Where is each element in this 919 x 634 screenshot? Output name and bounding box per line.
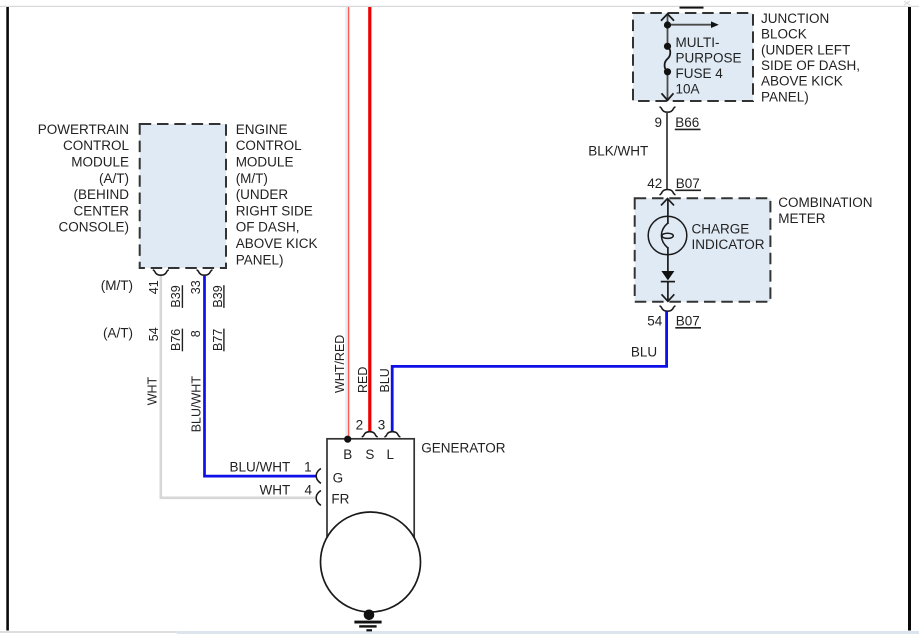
svg-text:SIDE OF DASH,: SIDE OF DASH,	[761, 58, 860, 73]
svg-text:2: 2	[356, 418, 364, 433]
svg-text:BLU/WHT: BLU/WHT	[230, 460, 291, 475]
svg-text:WHT: WHT	[145, 376, 159, 405]
svg-text:G: G	[333, 470, 344, 485]
svg-text:ABOVE KICK: ABOVE KICK	[761, 74, 843, 89]
svg-text:BLU/WHT: BLU/WHT	[189, 376, 203, 433]
svg-text:ABOVE KICK: ABOVE KICK	[236, 236, 318, 251]
svg-text:54: 54	[147, 327, 161, 341]
svg-text:CHARGE: CHARGE	[692, 221, 750, 236]
svg-text:CENTER: CENTER	[73, 203, 129, 218]
svg-text:RIGHT SIDE: RIGHT SIDE	[236, 203, 313, 218]
svg-text:3: 3	[378, 418, 386, 433]
svg-text:1: 1	[304, 460, 312, 475]
svg-text:WHT: WHT	[260, 482, 291, 497]
svg-text:METER: METER	[778, 211, 826, 226]
svg-text:CONTROL: CONTROL	[236, 138, 302, 153]
svg-text:BLK/WHT: BLK/WHT	[588, 144, 648, 159]
svg-text:S: S	[365, 447, 374, 462]
svg-text:9: 9	[654, 115, 662, 130]
svg-text:MODULE: MODULE	[71, 155, 129, 170]
svg-text:8: 8	[189, 330, 203, 337]
svg-text:CONSOLE): CONSOLE)	[58, 220, 129, 235]
svg-text:WHT/RED: WHT/RED	[333, 335, 347, 393]
svg-text:POWERTRAIN: POWERTRAIN	[38, 122, 129, 137]
svg-text:JUNCTION: JUNCTION	[761, 11, 829, 26]
svg-text:B66: B66	[675, 115, 699, 130]
svg-text:INDICATOR: INDICATOR	[692, 237, 765, 252]
svg-text:B76: B76	[169, 329, 183, 351]
svg-text:(UNDER: (UNDER	[236, 187, 289, 202]
svg-text:PANEL): PANEL)	[236, 252, 284, 267]
svg-text:BLOCK: BLOCK	[761, 27, 807, 42]
svg-text:33: 33	[189, 280, 203, 294]
svg-text:(M/T): (M/T)	[236, 171, 268, 186]
svg-text:CONTROL: CONTROL	[63, 138, 129, 153]
svg-text:B39: B39	[169, 285, 183, 307]
svg-text:GENERATOR: GENERATOR	[421, 440, 506, 455]
svg-text:RED: RED	[356, 367, 370, 393]
svg-text:ENGINE: ENGINE	[236, 122, 288, 137]
svg-text:BLU: BLU	[378, 368, 392, 392]
svg-text:PANEL): PANEL)	[761, 89, 809, 104]
svg-text:(M/T): (M/T)	[101, 278, 133, 293]
svg-text:(A/T): (A/T)	[99, 171, 129, 186]
svg-text:B: B	[343, 447, 352, 462]
svg-text:FUSE 4: FUSE 4	[676, 66, 724, 81]
svg-text:41: 41	[147, 280, 161, 294]
svg-text:42: 42	[647, 176, 662, 191]
svg-text:MULTI-: MULTI-	[676, 35, 720, 50]
svg-text:L: L	[387, 447, 395, 462]
svg-text:(UNDER LEFT: (UNDER LEFT	[761, 42, 850, 57]
svg-text:10A: 10A	[676, 82, 700, 97]
svg-text:BLU: BLU	[631, 344, 657, 359]
svg-text:B07: B07	[676, 313, 700, 328]
svg-text:PURPOSE: PURPOSE	[676, 50, 742, 65]
svg-text:FR: FR	[331, 492, 349, 507]
svg-text:MODULE: MODULE	[236, 155, 294, 170]
svg-text:B77: B77	[211, 329, 225, 351]
svg-text:B39: B39	[211, 285, 225, 307]
svg-text:(A/T): (A/T)	[103, 325, 133, 340]
svg-text:OF DASH,: OF DASH,	[236, 220, 300, 235]
svg-text:(BEHIND: (BEHIND	[73, 187, 129, 202]
svg-text:B07: B07	[676, 176, 700, 191]
svg-text:4: 4	[304, 482, 312, 497]
svg-text:54: 54	[647, 313, 663, 328]
svg-text:COMBINATION: COMBINATION	[778, 195, 872, 210]
